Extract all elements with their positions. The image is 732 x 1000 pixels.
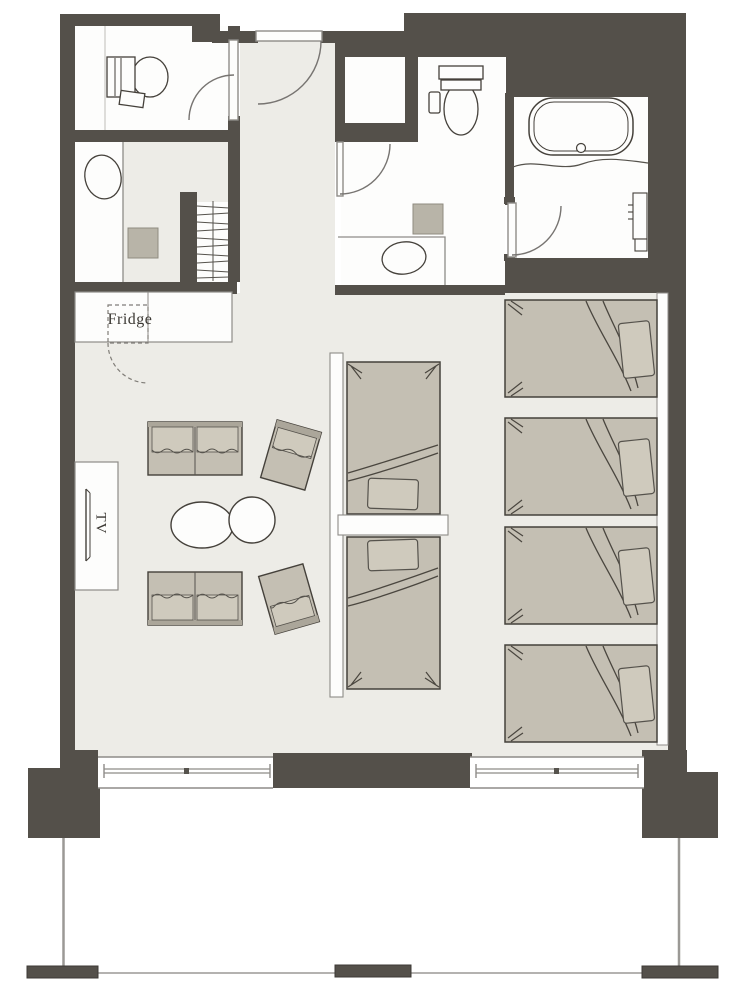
entry-corridor-floor xyxy=(240,41,335,295)
balcony-rail-icon xyxy=(27,838,718,978)
tv-board xyxy=(75,462,118,590)
wall-left xyxy=(60,14,75,758)
stool-2-icon xyxy=(413,204,443,234)
wall-top-right-mass xyxy=(404,13,686,57)
bed-right-3 xyxy=(505,527,657,624)
coffee-table-oval-icon xyxy=(171,502,233,548)
sofa-2-icon xyxy=(148,572,242,625)
wall-wc2-bottom xyxy=(335,285,505,295)
pillow-icon xyxy=(367,539,418,571)
bed-crossbar xyxy=(338,515,448,535)
window-1-icon xyxy=(98,757,273,788)
wall-wc1-bottom xyxy=(75,130,240,142)
pillow-icon xyxy=(618,666,655,724)
center-beds xyxy=(330,353,448,697)
pillow-icon xyxy=(367,478,418,510)
wall-bath-right xyxy=(648,93,686,258)
bed-right-4 xyxy=(505,645,657,742)
wall-below-alcove xyxy=(335,123,418,142)
bed-center-2 xyxy=(347,537,440,689)
pillow-icon xyxy=(618,548,655,606)
wall-top-left xyxy=(68,14,212,26)
floorplan-canvas: Fridge TV xyxy=(0,0,732,1000)
wall-bottom-center xyxy=(273,753,472,788)
sofa-icon xyxy=(148,422,242,475)
wall-right xyxy=(668,293,686,755)
pillow-icon xyxy=(618,439,655,497)
wall-above-bath xyxy=(506,57,686,97)
pillar-bottom-right xyxy=(642,772,718,838)
pillar-bottom-left xyxy=(28,768,100,838)
wall-alcove-right xyxy=(405,57,418,123)
wall-vanity-right xyxy=(228,142,240,282)
floorplan-svg xyxy=(0,0,732,1000)
bed-center-1 xyxy=(347,362,440,514)
coffee-table-round-icon xyxy=(229,497,275,543)
pillow-icon xyxy=(618,321,655,379)
bed-right-2 xyxy=(505,418,657,515)
headboard-strip xyxy=(657,293,668,745)
wall-bath-bottom xyxy=(505,258,686,293)
wall-wc2-bath xyxy=(505,93,514,205)
wall-nook-left xyxy=(180,192,197,282)
window-2-icon xyxy=(470,757,644,788)
shaft-alcove xyxy=(345,57,405,123)
bathtub-icon xyxy=(529,98,633,155)
stool-icon xyxy=(128,228,158,258)
bed-right-1 xyxy=(505,300,657,397)
